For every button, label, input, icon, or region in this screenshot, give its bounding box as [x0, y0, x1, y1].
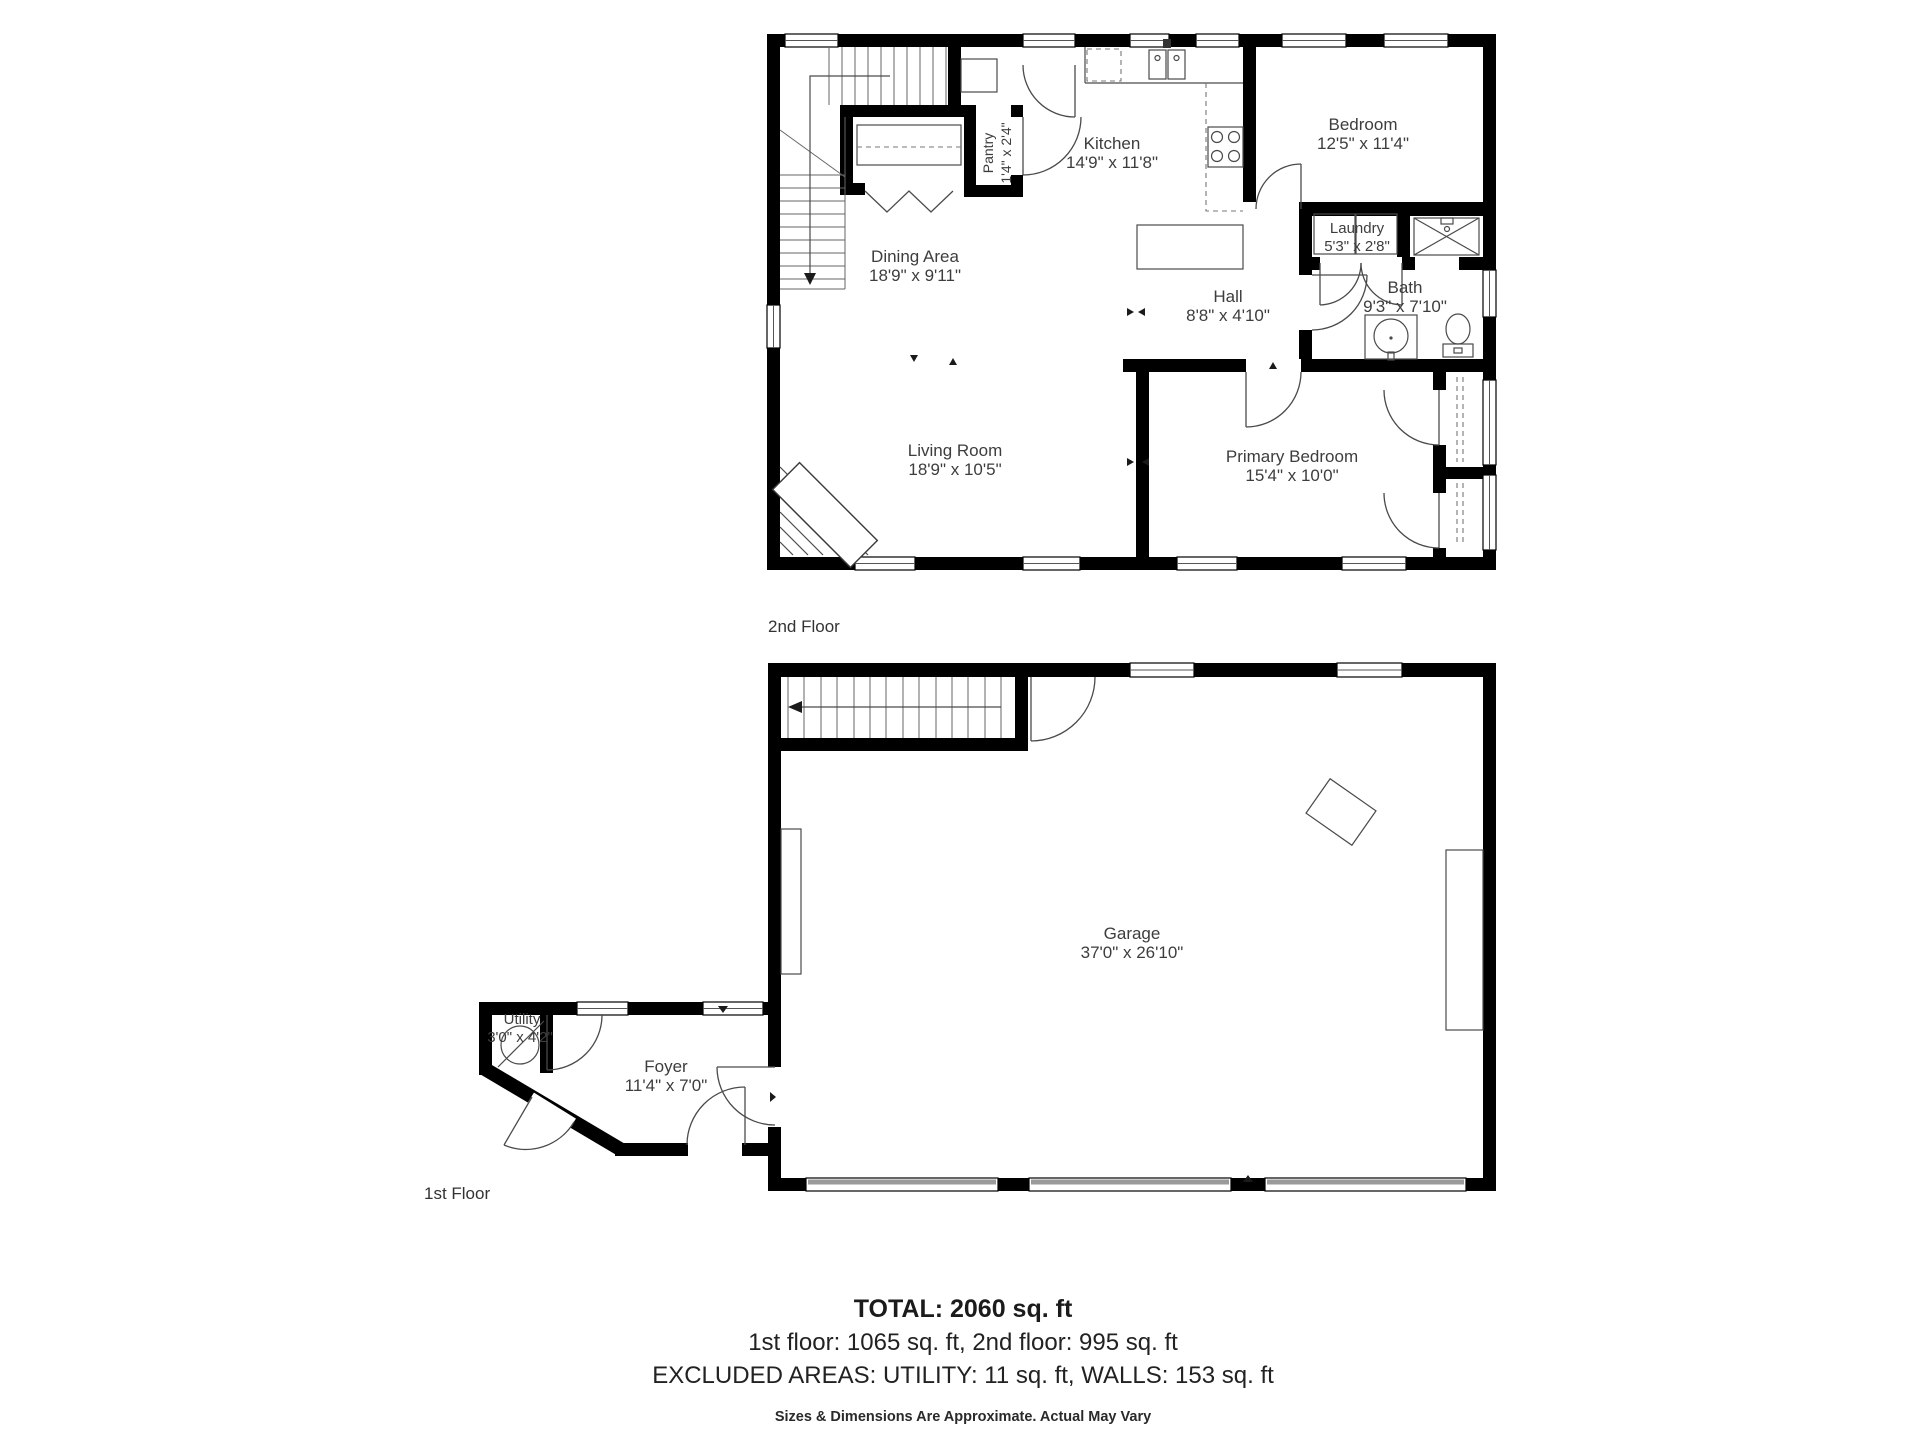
laundry-dims: 5'3" x 2'8" [1324, 238, 1390, 255]
shower-icon [1414, 218, 1479, 255]
room-labels-2nd-floor: Kitchen 14'9" x 11'8" Bedroom 12'5" x 11… [869, 115, 1447, 485]
caption-1st-floor: 1st Floor [424, 1184, 490, 1204]
workbench-right [1446, 850, 1483, 1030]
fireplace-icon [773, 463, 878, 568]
caption-2nd-floor: 2nd Floor [768, 617, 840, 637]
hall-label: Hall [1213, 287, 1242, 306]
toilet-icon [1443, 314, 1473, 357]
staircase-1st-floor [788, 677, 1001, 738]
disclaimer: Sizes & Dimensions Are Approximate. Actu… [563, 1409, 1363, 1425]
windows-1st-floor [577, 663, 1402, 1015]
bath-vanity-icon [1365, 315, 1417, 360]
kitchen-island [1137, 225, 1243, 269]
floorplan-page: Kitchen 14'9" x 11'8" Bedroom 12'5" x 11… [0, 0, 1920, 1440]
garage-doors [806, 1175, 1466, 1191]
area-summary: TOTAL: 2060 sq. ft 1st floor: 1065 sq. f… [563, 1293, 1363, 1425]
excluded-areas: EXCLUDED AREAS: UTILITY: 11 sq. ft, WALL… [563, 1359, 1363, 1392]
pantry-label: Pantry [980, 133, 996, 173]
garage-label: Garage [1104, 924, 1161, 943]
foyer-dims: 11'4" x 7'0" [625, 1076, 708, 1095]
pantry-dims: 1'4" x 2'4" [998, 122, 1014, 183]
bedroom-label: Bedroom [1329, 115, 1398, 134]
stair-closet [857, 125, 961, 212]
opening-markers-1st [718, 1006, 776, 1102]
closet-rods [1457, 377, 1463, 545]
hall-dims: 8'8" x 4'10" [1186, 306, 1270, 325]
primary-bedroom-dims: 15'4" x 10'0" [1245, 466, 1338, 485]
floor-areas: 1st floor: 1065 sq. ft, 2nd floor: 995 s… [563, 1326, 1363, 1359]
floorplan-2nd-floor: Kitchen 14'9" x 11'8" Bedroom 12'5" x 11… [765, 25, 1505, 575]
dining-label: Dining Area [871, 247, 959, 266]
front-entry-door [504, 1097, 532, 1145]
utility-label: Utility [504, 1011, 541, 1028]
stove-icon [1208, 127, 1243, 167]
bedroom-dims: 12'5" x 11'4" [1317, 134, 1409, 153]
dining-dims: 18'9" x 9'11" [869, 266, 961, 285]
walls-1st-floor [479, 663, 1496, 1191]
garage-dims: 37'0" x 26'10" [1081, 943, 1184, 962]
laundry-label: Laundry [1330, 220, 1385, 237]
fridge-icon [961, 59, 997, 92]
kitchen-dims: 14'9" x 11'8" [1066, 153, 1158, 172]
floorplan-1st-floor: Garage 37'0" x 26'10" Utility 3'0" x 4'2… [470, 655, 1510, 1205]
garage-fixtures [781, 779, 1483, 1030]
kitchen-label: Kitchen [1084, 134, 1141, 153]
garage-object [1306, 779, 1376, 846]
bath-label: Bath [1388, 278, 1423, 297]
total-area: TOTAL: 2060 sq. ft [563, 1293, 1363, 1326]
utility-dims: 3'0" x 4'2" [487, 1029, 553, 1046]
foyer-label: Foyer [644, 1057, 688, 1076]
living-room-dims: 18'9" x 10'5" [908, 460, 1001, 479]
living-room-label: Living Room [908, 441, 1003, 460]
dishwasher-icon [1087, 49, 1121, 81]
workbench-left [781, 829, 801, 974]
primary-bedroom-label: Primary Bedroom [1226, 447, 1358, 466]
bath-dims: 9'3" x 7'10" [1363, 297, 1447, 316]
